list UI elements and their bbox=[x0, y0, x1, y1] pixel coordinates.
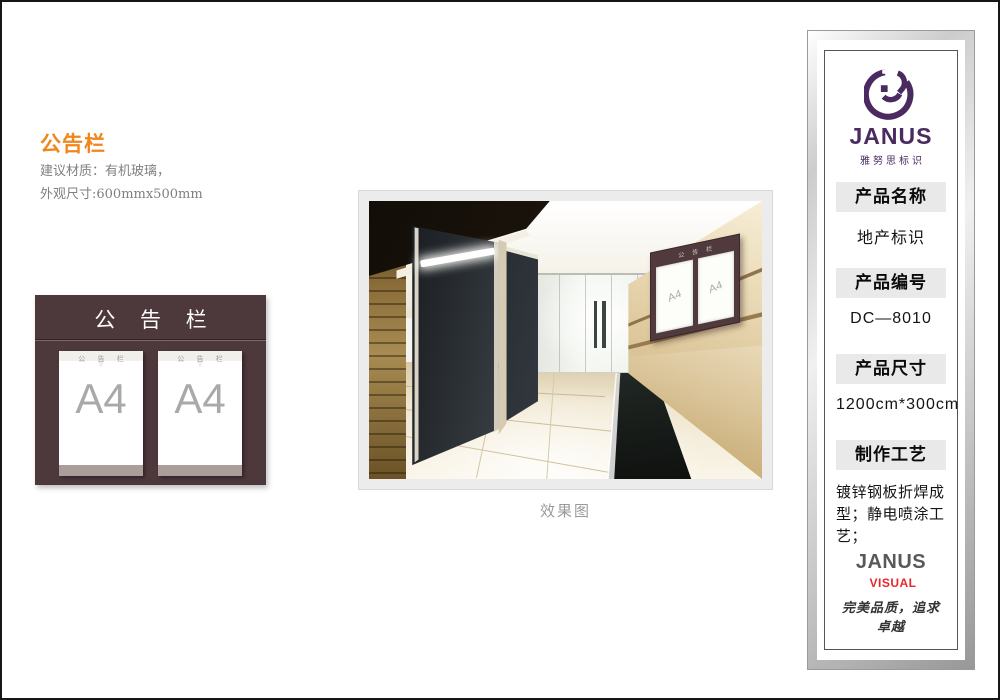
page-title: 公告栏 bbox=[40, 128, 106, 158]
photo-caption: 效果图 bbox=[358, 500, 773, 521]
pocket-bottom-strip bbox=[158, 465, 242, 476]
photo-mounted-sign: 公 告 栏 A4 A4 bbox=[650, 233, 740, 341]
board-groove-line bbox=[35, 339, 266, 341]
photo-a4-label: A4 bbox=[666, 288, 682, 305]
product-panel: JANUS 雅努思标识 产品名称 地产标识 产品编号 DC—8010 产品尺寸 … bbox=[817, 40, 965, 660]
board-pockets: 公 告 栏 A4 公 告 栏 A4 bbox=[35, 351, 266, 476]
brand-logo-block: JANUS 雅努思标识 bbox=[836, 67, 946, 167]
size-line: 外观尺寸:600mmx500mm bbox=[40, 183, 203, 206]
section-header-product-name: 产品名称 bbox=[836, 182, 946, 212]
effect-photo: 公 告 栏 A4 A4 bbox=[369, 201, 762, 479]
section-header-craft: 制作工艺 bbox=[836, 440, 946, 470]
spec-text-block: 建议材质：有机玻璃， 外观尺寸:600mmx500mm bbox=[40, 160, 203, 206]
section-value-product-code: DC—8010 bbox=[836, 310, 946, 334]
photo-a4-label: A4 bbox=[708, 279, 724, 296]
product-panel-inner: JANUS 雅努思标识 产品名称 地产标识 产品编号 DC—8010 产品尺寸 … bbox=[824, 50, 958, 650]
footer-brand: JANUS bbox=[856, 551, 926, 574]
a4-label: A4 bbox=[59, 375, 143, 423]
section-value-product-name: 地产标识 bbox=[836, 224, 946, 248]
pocket-header-label: 公 告 栏 bbox=[158, 354, 242, 364]
section-value-craft: 镀锌钢板折焊成型；静电喷涂工艺； bbox=[836, 482, 946, 548]
effect-photo-frame: 公 告 栏 A4 A4 bbox=[358, 190, 773, 490]
janus-logo-icon bbox=[864, 67, 918, 121]
brand-subtitle: 雅努思标识 bbox=[836, 152, 946, 167]
brand-name: JANUS bbox=[836, 123, 946, 150]
footer-brand-visual: VISUAL bbox=[869, 576, 916, 590]
section-header-product-code: 产品编号 bbox=[836, 268, 946, 298]
pocket-header-label: 公 告 栏 bbox=[59, 354, 143, 364]
a4-label: A4 bbox=[158, 375, 242, 423]
photo-door-handle bbox=[594, 301, 598, 348]
photo-sign-a4-panel: A4 bbox=[656, 259, 693, 333]
material-line: 建议材质：有机玻璃， bbox=[40, 160, 203, 183]
section-value-product-size: 1200cm*300cm bbox=[836, 396, 946, 420]
section-header-product-size: 产品尺寸 bbox=[836, 354, 946, 384]
panel-footer: JANUSVISUAL 完美品质，追求卓越 bbox=[836, 551, 946, 637]
footer-slogan: 完美品质，追求卓越 bbox=[836, 597, 946, 635]
a4-pocket: 公 告 栏 A4 bbox=[59, 351, 143, 476]
a4-pocket: 公 告 栏 A4 bbox=[158, 351, 242, 476]
board-title: 公 告 栏 bbox=[35, 295, 266, 334]
notice-board-mockup: 公 告 栏 公 告 栏 A4 公 告 栏 A4 bbox=[35, 295, 266, 485]
spec-sheet-page: 公告栏 建议材质：有机玻璃， 外观尺寸:600mmx500mm 公 告 栏 公 … bbox=[0, 0, 1000, 700]
pocket-bottom-strip bbox=[59, 465, 143, 476]
footer-brand-row: JANUSVISUAL bbox=[836, 551, 946, 592]
product-panel-frame: JANUS 雅努思标识 产品名称 地产标识 产品编号 DC—8010 产品尺寸 … bbox=[807, 30, 975, 670]
photo-door-handle bbox=[602, 301, 606, 348]
photo-sign-a4-panel: A4 bbox=[698, 250, 735, 324]
